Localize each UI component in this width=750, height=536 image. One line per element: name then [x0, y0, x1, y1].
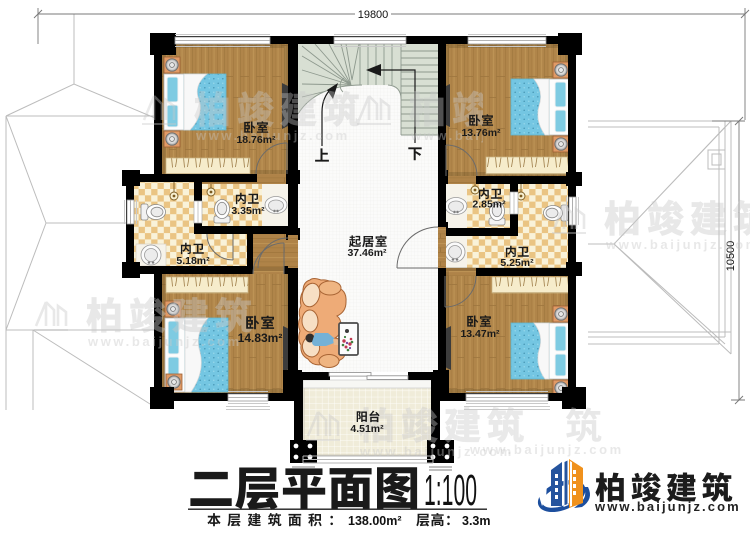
svg-text:37.46m²: 37.46m² — [347, 247, 387, 259]
svg-text:18.76m²: 18.76m² — [236, 134, 276, 146]
svg-text:14.83m²: 14.83m² — [238, 331, 283, 345]
svg-text:13.76m²: 13.76m² — [461, 127, 501, 139]
svg-text:19800: 19800 — [358, 9, 389, 21]
svg-text:4.51m²: 4.51m² — [350, 423, 384, 435]
svg-text:3.3m: 3.3m — [462, 514, 491, 528]
svg-text:www.baijunjz.com: www.baijunjz.com — [605, 237, 750, 252]
svg-text:5.25m²: 5.25m² — [500, 257, 534, 269]
svg-text:138.00m²: 138.00m² — [348, 514, 402, 528]
svg-text:1:100: 1:100 — [424, 466, 477, 515]
svg-text:5.18m²: 5.18m² — [176, 255, 210, 267]
svg-text:www.baijunjz.com: www.baijunjz.com — [594, 499, 741, 514]
svg-text:www.baijunjz.com: www.baijunjz.com — [87, 334, 242, 349]
svg-text:www.baijunjz.com: www.baijunjz.com — [469, 442, 624, 457]
svg-text:3.35m²: 3.35m² — [231, 205, 265, 217]
svg-text:2.85m²: 2.85m² — [472, 199, 506, 211]
svg-text:13.47m²: 13.47m² — [460, 328, 500, 340]
